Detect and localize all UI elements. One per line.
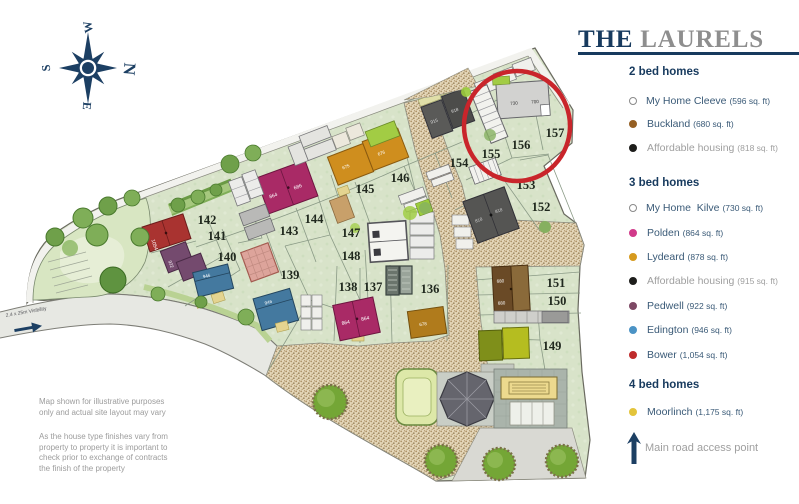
- svg-text:136: 136: [421, 282, 440, 296]
- svg-text:730: 730: [510, 100, 518, 106]
- svg-text:144: 144: [305, 212, 325, 226]
- svg-text:140: 140: [218, 250, 237, 264]
- svg-text:151: 151: [547, 276, 566, 290]
- svg-text:148: 148: [342, 249, 361, 263]
- svg-text:W: W: [80, 20, 96, 34]
- svg-text:155: 155: [482, 147, 501, 161]
- svg-text:142: 142: [198, 213, 217, 227]
- svg-text:150: 150: [548, 294, 567, 308]
- svg-text:680: 680: [496, 278, 504, 283]
- svg-text:N: N: [119, 62, 139, 77]
- svg-text:154: 154: [450, 156, 470, 170]
- svg-text:139: 139: [281, 268, 300, 282]
- svg-text:152: 152: [532, 200, 551, 214]
- svg-text:141: 141: [208, 229, 227, 243]
- svg-text:146: 146: [391, 171, 410, 185]
- svg-text:138: 138: [339, 280, 358, 294]
- svg-text:156: 156: [512, 138, 531, 152]
- svg-text:149: 149: [543, 339, 562, 353]
- svg-text:143: 143: [280, 224, 299, 238]
- svg-text:S: S: [39, 64, 54, 72]
- svg-text:147: 147: [342, 226, 361, 240]
- svg-text:700: 700: [531, 99, 539, 105]
- svg-text:E: E: [80, 101, 95, 110]
- svg-text:680: 680: [498, 300, 506, 305]
- svg-text:137: 137: [364, 280, 383, 294]
- svg-text:157: 157: [546, 126, 565, 140]
- svg-text:145: 145: [356, 182, 375, 196]
